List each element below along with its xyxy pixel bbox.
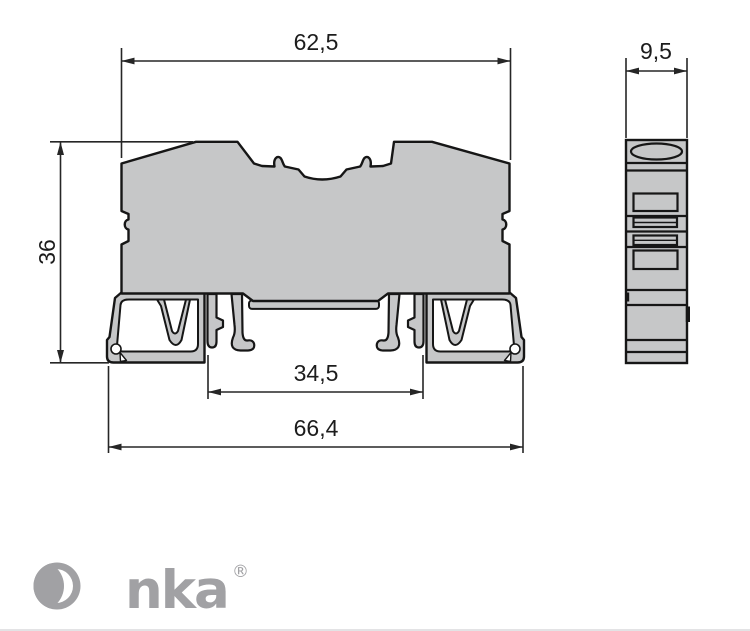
left-foot xyxy=(107,292,254,363)
dimension-label-side-width: 9,5 xyxy=(616,38,696,64)
side-rail-hook xyxy=(686,307,690,323)
terminal-block-dimension-drawing xyxy=(0,0,750,631)
side-slot-1 xyxy=(634,194,678,212)
right-foot xyxy=(377,292,524,363)
side-left-notch xyxy=(625,293,629,302)
dimension-side-width xyxy=(626,58,687,138)
front-view xyxy=(107,142,524,363)
dimension-label-bottom-width: 66,4 xyxy=(266,415,366,441)
housing-body-outline xyxy=(122,142,510,301)
dimension-label-rail-channel: 34,5 xyxy=(266,360,366,386)
marker-holder-oval xyxy=(631,144,682,160)
registered-trademark-mark: ® xyxy=(232,564,249,581)
dimension-top-width xyxy=(122,48,511,160)
onka-logo: nka ® xyxy=(33,560,233,622)
dimension-label-height: 36 xyxy=(34,233,60,271)
side-view xyxy=(625,140,690,363)
technical-drawing-page: 62,5 36 34,5 66,4 9,5 nka ® xyxy=(0,0,750,631)
onka-logo-text: nka xyxy=(125,560,228,622)
dimension-label-top-width: 62,5 xyxy=(266,29,366,55)
onka-logo-o-icon xyxy=(33,560,83,612)
side-slot-4 xyxy=(634,251,678,270)
